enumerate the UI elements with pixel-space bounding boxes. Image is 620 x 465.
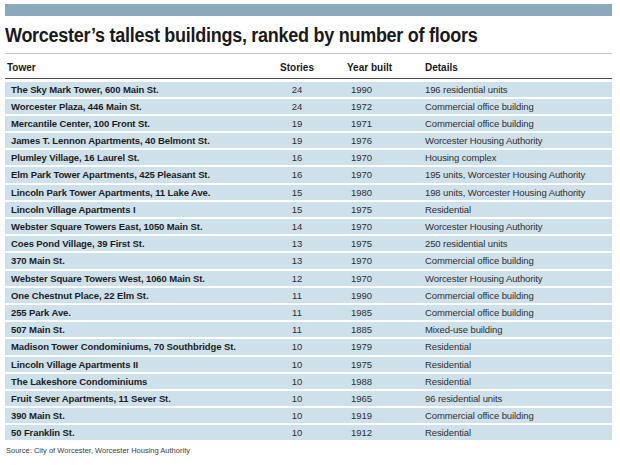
table-row: The Sky Mark Tower, 600 Main St.24199019… — [5, 82, 612, 97]
table-row: Coes Pond Village, 39 First St.131975250… — [5, 236, 612, 251]
column-header-stories: Stories — [267, 62, 327, 73]
cell-stories: 11 — [267, 288, 327, 303]
cell-year-built: 1975 — [327, 202, 415, 217]
cell-stories: 13 — [267, 236, 327, 251]
cell-details: 196 residential units — [415, 82, 612, 97]
cell-details: Commercial office building — [415, 99, 612, 114]
cell-year-built: 1980 — [327, 185, 415, 200]
cell-tower: James T. Lennon Apartments, 40 Belmont S… — [5, 133, 267, 148]
cell-year-built: 1965 — [327, 391, 415, 406]
cell-tower: 370 Main St. — [5, 253, 267, 268]
column-header-details: Details — [415, 62, 612, 73]
cell-year-built: 1970 — [327, 271, 415, 286]
cell-stories: 14 — [267, 219, 327, 234]
cell-tower: Elm Park Tower Apartments, 425 Pleasant … — [5, 167, 267, 182]
cell-details: Commercial office building — [415, 253, 612, 268]
cell-tower: One Chestnut Place, 22 Elm St. — [5, 288, 267, 303]
column-header-year-built: Year built — [327, 62, 415, 73]
cell-year-built: 1919 — [327, 408, 415, 423]
cell-year-built: 1970 — [327, 167, 415, 182]
cell-details: Commercial office building — [415, 305, 612, 320]
cell-details: Worcester Housing Authority — [415, 219, 612, 234]
table-row: Worcester Plaza, 446 Main St.241972Comme… — [5, 99, 612, 114]
table-row: Lincoln Park Tower Apartments, 11 Lake A… — [5, 185, 612, 200]
cell-tower: Webster Square Towers East, 1050 Main St… — [5, 219, 267, 234]
table-body: The Sky Mark Tower, 600 Main St.24199019… — [5, 82, 612, 441]
table-row: Fruit Sever Apartments, 11 Sever St.1019… — [5, 391, 612, 406]
cell-year-built: 1988 — [327, 374, 415, 389]
table-row: 50 Franklin St.101912Residential — [5, 425, 612, 440]
cell-details: Commercial office building — [415, 288, 612, 303]
cell-tower: Worcester Plaza, 446 Main St. — [5, 99, 267, 114]
cell-details: 198 units, Worcester Housing Authority — [415, 185, 612, 200]
cell-details: Residential — [415, 202, 612, 217]
cell-stories: 10 — [267, 425, 327, 440]
cell-year-built: 1970 — [327, 219, 415, 234]
top-accent-bar — [5, 4, 612, 16]
cell-details: 96 residential units — [415, 391, 612, 406]
table-row: 370 Main St.131970Commercial office buil… — [5, 253, 612, 268]
source-note: Source: City of Worcester, Worcester Hou… — [5, 446, 612, 455]
cell-tower: 255 Park Ave. — [5, 305, 267, 320]
cell-year-built: 1912 — [327, 425, 415, 440]
cell-tower: 390 Main St. — [5, 408, 267, 423]
table-row: Webster Square Towers West, 1060 Main St… — [5, 271, 612, 286]
cell-stories: 10 — [267, 374, 327, 389]
cell-stories: 10 — [267, 357, 327, 372]
cell-tower: Lincoln Park Tower Apartments, 11 Lake A… — [5, 185, 267, 200]
cell-year-built: 1976 — [327, 133, 415, 148]
cell-year-built: 1990 — [327, 288, 415, 303]
table-row: Plumley Village, 16 Laurel St.161970Hous… — [5, 150, 612, 165]
cell-tower: 507 Main St. — [5, 322, 267, 337]
cell-tower: Madison Tower Condominiums, 70 Southbrid… — [5, 339, 267, 354]
table-row: The Lakeshore Condominiums101988Resident… — [5, 374, 612, 389]
cell-stories: 24 — [267, 82, 327, 97]
cell-stories: 10 — [267, 408, 327, 423]
cell-year-built: 1975 — [327, 236, 415, 251]
cell-stories: 12 — [267, 271, 327, 286]
cell-stories: 11 — [267, 305, 327, 320]
column-header-tower: Tower — [5, 62, 267, 73]
cell-tower: Fruit Sever Apartments, 11 Sever St. — [5, 391, 267, 406]
table-row: 390 Main St.101919Commercial office buil… — [5, 408, 612, 423]
cell-year-built: 1885 — [327, 322, 415, 337]
cell-tower: Plumley Village, 16 Laurel St. — [5, 150, 267, 165]
cell-details: Residential — [415, 374, 612, 389]
cell-details: Residential — [415, 425, 612, 440]
cell-stories: 16 — [267, 150, 327, 165]
table-row: James T. Lennon Apartments, 40 Belmont S… — [5, 133, 612, 148]
cell-tower: Mercantile Center, 100 Front St. — [5, 116, 267, 131]
cell-year-built: 1990 — [327, 82, 415, 97]
page-title: Worcester’s tallest buildings, ranked by… — [5, 25, 551, 45]
table-header-row: Tower Stories Year built Details — [5, 56, 612, 79]
cell-details: Mixed-use building — [415, 322, 612, 337]
cell-details: Worcester Housing Authority — [415, 271, 612, 286]
cell-details: Worcester Housing Authority — [415, 133, 612, 148]
cell-tower: Lincoln Village Apartments I — [5, 202, 267, 217]
cell-tower: The Lakeshore Condominiums — [5, 374, 267, 389]
cell-stories: 10 — [267, 391, 327, 406]
cell-stories: 19 — [267, 133, 327, 148]
cell-stories: 24 — [267, 99, 327, 114]
cell-tower: Coes Pond Village, 39 First St. — [5, 236, 267, 251]
cell-details: Commercial office building — [415, 116, 612, 131]
cell-stories: 10 — [267, 339, 327, 354]
cell-year-built: 1970 — [327, 253, 415, 268]
table-row: Elm Park Tower Apartments, 425 Pleasant … — [5, 167, 612, 182]
table-row: 507 Main St.111885Mixed-use building — [5, 322, 612, 337]
cell-details: Residential — [415, 339, 612, 354]
cell-stories: 16 — [267, 167, 327, 182]
cell-year-built: 1970 — [327, 150, 415, 165]
cell-stories: 15 — [267, 202, 327, 217]
table-row: Lincoln Village Apartments II101975Resid… — [5, 357, 612, 372]
table-row: Madison Tower Condominiums, 70 Southbrid… — [5, 339, 612, 354]
cell-year-built: 1985 — [327, 305, 415, 320]
cell-tower: Webster Square Towers West, 1060 Main St… — [5, 271, 267, 286]
cell-stories: 19 — [267, 116, 327, 131]
table-row: Mercantile Center, 100 Front St.191971Co… — [5, 116, 612, 131]
cell-stories: 13 — [267, 253, 327, 268]
table-row: 255 Park Ave.111985Commercial office bui… — [5, 305, 612, 320]
cell-tower: The Sky Mark Tower, 600 Main St. — [5, 82, 267, 97]
cell-year-built: 1972 — [327, 99, 415, 114]
title-divider — [5, 53, 612, 54]
table-row: One Chestnut Place, 22 Elm St.111990Comm… — [5, 288, 612, 303]
cell-tower: 50 Franklin St. — [5, 425, 267, 440]
cell-details: Residential — [415, 357, 612, 372]
cell-stories: 11 — [267, 322, 327, 337]
table-row: Lincoln Village Apartments I151975Reside… — [5, 202, 612, 217]
cell-tower: Lincoln Village Apartments II — [5, 357, 267, 372]
cell-stories: 15 — [267, 185, 327, 200]
cell-year-built: 1975 — [327, 357, 415, 372]
infographic-table: Worcester’s tallest buildings, ranked by… — [0, 0, 620, 465]
table-row: Webster Square Towers East, 1050 Main St… — [5, 219, 612, 234]
cell-details: 250 residential units — [415, 236, 612, 251]
cell-year-built: 1971 — [327, 116, 415, 131]
cell-details: Commercial office building — [415, 408, 612, 423]
cell-year-built: 1979 — [327, 339, 415, 354]
cell-details: Housing complex — [415, 150, 612, 165]
cell-details: 195 units, Worcester Housing Authority — [415, 167, 612, 182]
